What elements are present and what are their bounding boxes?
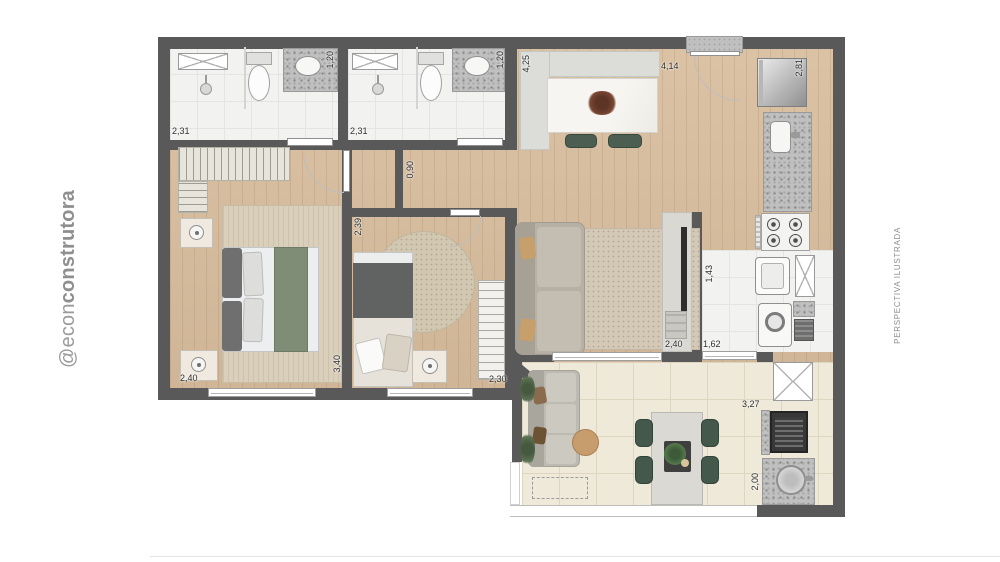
dining-chair-3 <box>701 419 719 447</box>
floor-plan: 2,31 1,20 2,31 1,20 4,25 4,14 2,81 0,90 … <box>158 35 845 520</box>
terrace-storage-outline <box>532 477 588 499</box>
bedroom1-headboard-cushion-2 <box>222 301 242 351</box>
terrace-sofa-cushion-1 <box>546 373 576 402</box>
brand-handle-bold: construtora <box>57 190 79 303</box>
wall-bath-divider <box>338 37 348 150</box>
stove-burner-1 <box>767 218 780 231</box>
wall-left <box>158 37 170 400</box>
laundry-shaft-box <box>795 255 815 297</box>
bedroom2-blanket <box>353 263 413 318</box>
bedroom1-headboard-cushion-1 <box>222 248 242 298</box>
bath1-toilet-bowl <box>248 65 270 101</box>
dim-bath2-depth: 1,20 <box>495 51 505 69</box>
entry-door <box>690 51 740 56</box>
laundry-window <box>702 351 757 360</box>
wall-bath2-right <box>505 37 517 150</box>
bath1-shaft-box <box>178 53 228 70</box>
terrace-rail-bottom <box>510 505 757 517</box>
grill-side-counter <box>761 410 770 455</box>
tv-console <box>665 311 687 339</box>
dim-laundry-depth: 1,43 <box>704 265 714 283</box>
terrace-plant-2 <box>520 433 535 465</box>
brand-watermark: @econconstrutora <box>57 190 80 368</box>
bath2-shower-head <box>372 83 384 95</box>
wall-hall-stub <box>395 150 403 212</box>
living-sofa-cushion-1 <box>537 227 581 287</box>
stove-burner-4 <box>789 234 802 247</box>
kitchen-faucet <box>791 132 800 138</box>
dim-hall-width: 0,90 <box>405 161 415 179</box>
fridge-handle <box>759 60 763 105</box>
floor-plan-page: @econconstrutora PERSPECTIVA ILUSTRADA <box>0 0 1000 562</box>
dining-cup <box>681 459 689 467</box>
tv <box>681 227 687 323</box>
bedroom2-wardrobe <box>478 280 505 380</box>
terrace-shaft-box <box>773 362 813 401</box>
dim-kitchen-width: 4,14 <box>661 61 679 71</box>
living-throw-pillow-1 <box>519 236 537 260</box>
living-sofa-cushion-2 <box>537 291 581 351</box>
dim-bedroom1-length: 3,40 <box>332 355 342 373</box>
dim-bedroom1-width: 2,40 <box>180 373 198 383</box>
dim-living-tv-wall: 2,40 <box>665 339 683 349</box>
bedroom1-pillow-1 <box>242 252 264 297</box>
bedroom1-door <box>343 150 350 192</box>
bath1-shower-head <box>200 83 212 95</box>
island-stool-2 <box>608 134 642 148</box>
stove-burner-3 <box>767 234 780 247</box>
dim-bath2-width: 2,31 <box>350 126 368 136</box>
dining-chair-2 <box>635 456 653 484</box>
dim-bedroom2-depth: 2,39 <box>353 218 363 236</box>
footer-divider <box>150 556 1000 557</box>
wall-living-terrace-right <box>662 352 692 362</box>
bedroom2-lamp <box>422 358 438 374</box>
bath2-sink <box>464 56 490 76</box>
grill-faucet <box>804 476 813 481</box>
terrace-sofa-cushion-2 <box>546 404 576 433</box>
terrace-plant-1 <box>520 375 535 403</box>
bedroom1-blanket <box>274 247 308 352</box>
wall-bedroom2-top <box>352 208 517 217</box>
bedroom1-closet-side <box>178 181 208 213</box>
dim-terrace-width: 3,27 <box>742 399 760 409</box>
bedroom2-window <box>387 388 473 397</box>
laundry-shelf <box>793 301 815 317</box>
bath2-shaft-box <box>352 53 398 70</box>
living-sliding-door <box>552 352 662 361</box>
dining-chair-1 <box>635 419 653 447</box>
bath2-toilet-tank <box>418 52 444 65</box>
wall-laundry-terrace <box>757 352 773 362</box>
bedroom1-lamp-1 <box>189 225 204 240</box>
bedroom1-lamp-2 <box>191 357 206 372</box>
bath2-toilet-bowl <box>420 65 442 101</box>
bedroom2-door <box>450 209 480 216</box>
dim-laundry-width: 1,62 <box>703 339 721 349</box>
dim-bedroom2-width: 2,30 <box>489 374 507 384</box>
bedroom1-closet-top <box>178 147 290 181</box>
laundry-vent <box>794 319 814 341</box>
washing-machine-door <box>765 312 785 332</box>
terrace-coffee-table <box>572 429 599 456</box>
laundry-tub-basin <box>761 263 784 289</box>
bath1-door <box>287 138 333 146</box>
kitchen-sink <box>770 121 791 153</box>
wall-terrace-bottom <box>757 505 845 517</box>
grill-sink <box>776 465 806 495</box>
wall-right <box>833 37 845 517</box>
dim-bath1-width: 2,31 <box>172 126 190 136</box>
grill-grate <box>775 417 803 447</box>
dim-kitchen-depth: 4,25 <box>521 55 531 73</box>
spice-rack <box>755 215 761 249</box>
terrace-rail-left <box>510 462 520 505</box>
brand-handle-regular: @econ <box>57 303 79 368</box>
island-stool-1 <box>565 134 597 148</box>
bath2-door <box>457 138 503 146</box>
dining-chair-4 <box>701 456 719 484</box>
dim-kitchen-counter-run: 2,81 <box>794 59 804 77</box>
bedroom1-pillow-2 <box>242 298 264 343</box>
bedroom1-window <box>208 388 316 397</box>
living-throw-pillow-2 <box>519 318 536 341</box>
dim-terrace-depth: 2,00 <box>750 473 760 491</box>
bath1-sink <box>295 56 321 76</box>
stove-burner-2 <box>789 218 802 231</box>
bath1-toilet-tank <box>246 52 272 65</box>
perspective-note: PERSPECTIVA ILUSTRADA <box>893 227 902 344</box>
bedroom2-pillow-2 <box>382 333 413 372</box>
island-centerpiece <box>586 91 618 115</box>
dim-bath1-depth: 1,20 <box>325 51 335 69</box>
